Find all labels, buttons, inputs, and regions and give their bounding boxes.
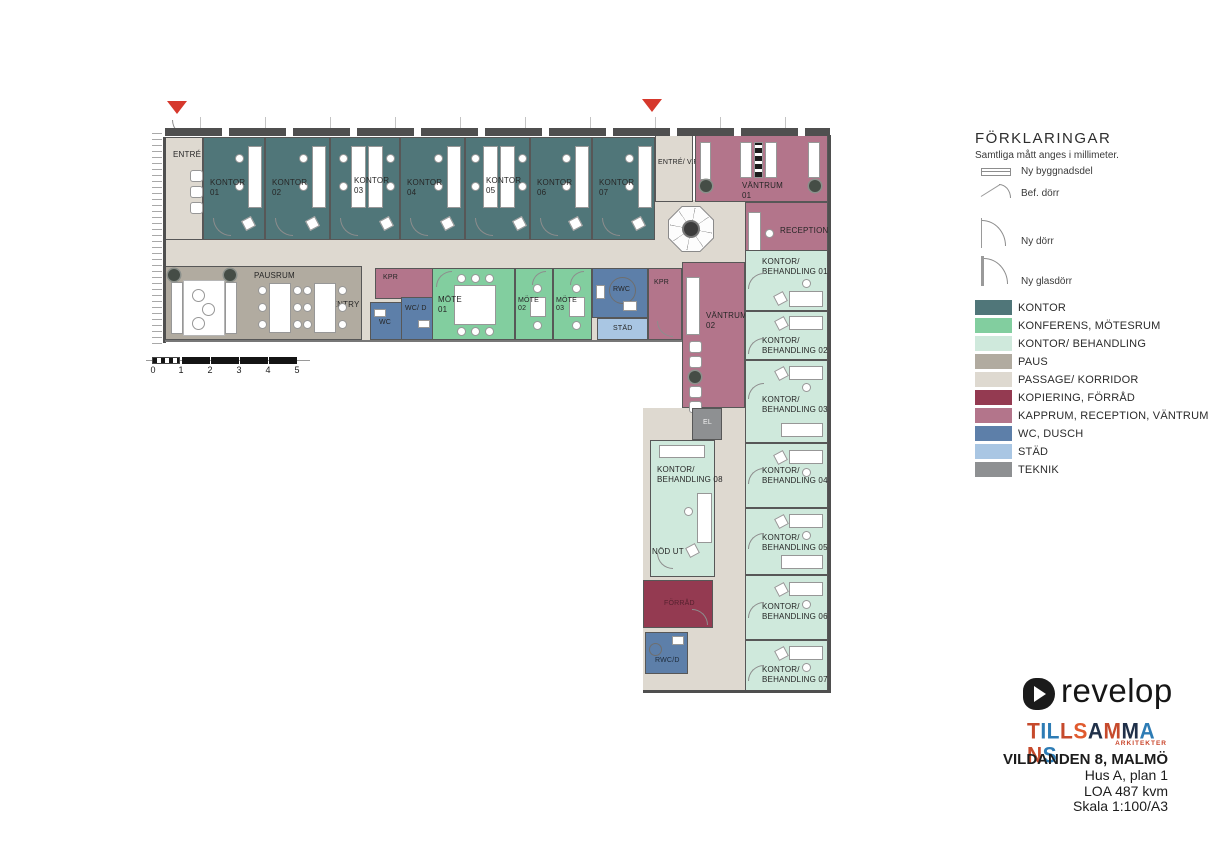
legend-symbol-label: Ny glasdörr xyxy=(1021,276,1072,287)
room-label: KPR xyxy=(654,279,669,287)
legend-color-row: TEKNIK xyxy=(975,462,1217,477)
chair xyxy=(303,286,312,295)
chair xyxy=(684,507,693,516)
legend-color-label: WC, DUSCH xyxy=(1018,428,1083,440)
desk xyxy=(789,646,823,660)
legend-color-label: KONTOR/ BEHANDLING xyxy=(1018,338,1146,350)
existing-wall-hatch xyxy=(152,132,162,344)
plant xyxy=(168,269,180,281)
chair xyxy=(293,286,302,295)
legend-color-label: PASSAGE/ KORRIDOR xyxy=(1018,374,1139,386)
bench xyxy=(808,142,820,178)
revelop-logo-icon xyxy=(1023,678,1055,710)
new-glass-door-icon xyxy=(984,258,1008,284)
chair xyxy=(339,154,348,163)
chair xyxy=(293,303,302,312)
legend-color-label: TEKNIK xyxy=(1018,464,1059,476)
room-rwc-d: RWC/D xyxy=(645,632,688,674)
legend-symbol-label: Ny dörr xyxy=(1021,236,1054,247)
legend-symbol-label: Bef. dörr xyxy=(1021,188,1059,199)
bench xyxy=(765,142,777,178)
legend-color-label: STÄD xyxy=(1018,446,1048,458)
play-icon xyxy=(1034,686,1046,702)
chair xyxy=(338,303,347,312)
room-label: VÄNTRUM02 xyxy=(706,311,747,330)
room-mote-01: MÖTE01 xyxy=(432,268,515,340)
chair xyxy=(338,320,347,329)
scale-bar-segment xyxy=(152,357,180,364)
chair xyxy=(802,383,811,392)
chair xyxy=(533,321,542,330)
room-behandling-01: KONTOR/BEHANDLING 01 xyxy=(745,250,828,311)
chair xyxy=(471,327,480,336)
door-arc xyxy=(748,665,764,681)
legend-color-row: KONTOR/ BEHANDLING xyxy=(975,336,1217,351)
room-stad: STÄD xyxy=(597,318,648,340)
chair xyxy=(258,303,267,312)
desk xyxy=(638,146,652,208)
desk xyxy=(789,582,823,596)
chair xyxy=(625,154,634,163)
shower-ring xyxy=(649,643,662,656)
chair xyxy=(190,186,203,198)
octagon-table xyxy=(668,206,714,252)
room-behandling-06: KONTOR/BEHANDLING 06 xyxy=(745,575,828,640)
chair xyxy=(774,646,789,661)
legend-color-label: KOPIERING, FÖRRÅD xyxy=(1018,392,1135,404)
scale-tick: 5 xyxy=(294,365,299,375)
door-arc xyxy=(692,609,708,625)
scale-bar-segment xyxy=(240,357,268,364)
legend-color-row: PASSAGE/ KORRIDOR xyxy=(975,372,1217,387)
legend-color-row: PAUS xyxy=(975,354,1217,369)
scale-bar-segment xyxy=(182,357,210,364)
legend-title: FÖRKLARINGAR xyxy=(975,130,1111,147)
room-label: KONTOR07 xyxy=(599,178,634,197)
studio-subtitle: ARKITEKTER xyxy=(1027,740,1167,747)
desk xyxy=(789,291,823,307)
legend-color-row: WC, DUSCH xyxy=(975,426,1217,441)
toilet xyxy=(596,285,605,299)
room-label: RWC/D xyxy=(655,657,680,665)
legend-color-row: KONFERENS, MÖTESRUM xyxy=(975,318,1217,333)
chair xyxy=(512,216,527,231)
scale-bar-segment xyxy=(211,357,239,364)
bed xyxy=(659,445,705,458)
scale-tick: 4 xyxy=(265,365,270,375)
chair xyxy=(562,154,571,163)
chair xyxy=(190,202,203,214)
chair xyxy=(303,303,312,312)
desk xyxy=(697,493,712,543)
outer-wall-top xyxy=(165,128,830,136)
chair xyxy=(386,154,395,163)
room-label: ENTRÉ xyxy=(173,150,201,160)
legend-swatch xyxy=(975,426,1012,441)
plant xyxy=(809,180,821,192)
room-label: WC xyxy=(379,319,391,327)
emergency-exit-label: NÖD UT xyxy=(652,547,684,557)
chair xyxy=(471,182,480,191)
chair xyxy=(689,386,702,398)
door-arc xyxy=(436,271,452,287)
chair xyxy=(305,216,320,231)
room-label: KONTOR02 xyxy=(272,178,307,197)
legend-subtitle: Samtliga mått anges i millimeter. xyxy=(975,150,1119,161)
outer-wall-bottom-left-wing xyxy=(165,340,682,342)
chair xyxy=(774,316,789,331)
room-label: KONTOR/BEHANDLING 06 xyxy=(762,602,828,621)
chair xyxy=(765,229,774,238)
outer-wall-bottom xyxy=(643,690,831,693)
room-label: KONTOR/BEHANDLING 01 xyxy=(762,257,828,276)
room-behandling-02: KONTOR/BEHANDLING 02 xyxy=(745,311,828,360)
desk xyxy=(789,316,823,330)
legend-swatch xyxy=(975,462,1012,477)
legend-color-label: KONTOR xyxy=(1018,302,1066,314)
chair xyxy=(471,274,480,283)
new-building-part-icon xyxy=(981,168,1011,176)
scale-bar: 0 1 2 3 4 5 xyxy=(150,352,306,374)
coffee-table xyxy=(192,317,205,330)
room-label: MÖTE02 xyxy=(518,297,539,314)
desk xyxy=(312,146,326,208)
door-arc xyxy=(410,218,428,236)
sofa xyxy=(171,282,183,334)
brand-logo: revelop xyxy=(1023,676,1168,714)
chair xyxy=(471,154,480,163)
room-label: RWC xyxy=(613,286,630,294)
room-label: KONTOR/BEHANDLING 05 xyxy=(762,533,828,552)
chair xyxy=(533,284,542,293)
octagon-table-hub xyxy=(684,222,698,236)
room-label: PAUSRUM xyxy=(254,271,295,281)
reception-desk xyxy=(748,212,761,252)
plant xyxy=(224,269,236,281)
room-mote-02: MÖTE02 xyxy=(515,268,553,340)
door-arc xyxy=(475,218,493,236)
legend-symbol-label: Ny byggnadsdel xyxy=(1021,166,1093,177)
room-vantrum-01: VÄNTRUM01 xyxy=(695,135,828,202)
room-kpr-b: KPR xyxy=(648,268,682,340)
legend-color-row: KONTOR xyxy=(975,300,1217,315)
room-label: STÄD xyxy=(613,325,632,333)
door-arc xyxy=(748,338,764,354)
chair xyxy=(485,274,494,283)
sink xyxy=(672,636,684,645)
room-label: KONTOR04 xyxy=(407,178,442,197)
chair xyxy=(631,216,646,231)
corridor-main xyxy=(165,240,682,268)
new-door-icon xyxy=(982,220,1006,246)
brand-name: revelop xyxy=(1061,672,1173,710)
plant xyxy=(700,180,712,192)
legend-color-row: KOPIERING, FÖRRÅD xyxy=(975,390,1217,405)
door-arc xyxy=(748,383,764,399)
room-label: KONTOR/BEHANDLING 08 xyxy=(657,465,723,484)
bench xyxy=(700,142,711,180)
chair xyxy=(689,341,702,353)
legend-color-label: PAUS xyxy=(1018,356,1048,368)
desk xyxy=(789,450,823,464)
project-line: LOA 487 kvm xyxy=(1003,784,1168,800)
chair xyxy=(689,356,702,368)
sofa xyxy=(225,282,237,334)
chair xyxy=(338,286,347,295)
room-label: ENTRÉ/ V.F xyxy=(658,159,698,167)
legend-color-label: KONFERENS, MÖTESRUM xyxy=(1018,320,1161,332)
room-label: VÄNTRUM01 xyxy=(742,181,783,200)
chair xyxy=(572,321,581,330)
room-kontor-04: KONTOR04 xyxy=(400,137,465,240)
room-mote-03: MÖTE03 xyxy=(553,268,592,340)
room-label: KONTOR/BEHANDLING 07 xyxy=(762,665,828,684)
sink xyxy=(623,301,637,311)
entrance-marker xyxy=(642,99,662,112)
scale-tick: 0 xyxy=(150,365,155,375)
room-kontor-02: KONTOR02 xyxy=(265,137,330,240)
room-forrad: FÖRRÅD xyxy=(643,580,713,628)
door-arc xyxy=(748,468,764,484)
desk xyxy=(789,366,823,380)
sink xyxy=(418,320,430,328)
door-arc xyxy=(657,321,673,337)
chair xyxy=(190,170,203,182)
bench xyxy=(740,142,752,178)
existing-door-icon xyxy=(999,184,1011,198)
project-line: Hus A, plan 1 xyxy=(1003,768,1168,784)
chair xyxy=(572,284,581,293)
chair xyxy=(440,216,455,231)
entrance-marker xyxy=(167,101,187,114)
room-kontor-05: KONTOR05 xyxy=(465,137,530,240)
room-rwc: RWC xyxy=(592,268,648,318)
desk xyxy=(248,146,262,208)
legend-color-row: STÄD xyxy=(975,444,1217,459)
coffee-table xyxy=(202,303,215,316)
chair xyxy=(379,216,394,231)
room-pausrum: PAUSRUM PENTRY xyxy=(165,266,362,340)
room-kontor-01: KONTOR01 xyxy=(203,137,265,240)
room-label: KONTOR/BEHANDLING 04 xyxy=(762,466,828,485)
legend-swatch xyxy=(975,444,1012,459)
plant xyxy=(689,371,701,383)
chair xyxy=(241,216,256,231)
legend-swatch xyxy=(975,408,1012,423)
chair xyxy=(457,274,466,283)
chair xyxy=(457,327,466,336)
room-kpr-a: KPR xyxy=(375,268,433,299)
door-arc xyxy=(275,218,293,236)
room-reception: RECEPTION xyxy=(745,202,828,255)
room-wc-d: WC/ D xyxy=(401,297,434,340)
legend-swatch xyxy=(975,390,1012,405)
project-info: VILDANDEN 8, MALMÖ Hus A, plan 1 LOA 487… xyxy=(1003,751,1168,815)
door-arc xyxy=(748,602,764,618)
room-label: KONTOR/BEHANDLING 02 xyxy=(762,336,828,355)
outer-wall-left xyxy=(163,137,166,343)
project-line: Skala 1:100/A3 xyxy=(1003,799,1168,815)
door-arc xyxy=(340,218,358,236)
room-label: KONTOR03 xyxy=(354,176,389,195)
chair xyxy=(774,514,789,529)
room-label: KONTOR05 xyxy=(486,176,521,195)
table xyxy=(314,283,336,333)
sink xyxy=(374,309,386,317)
room-label: MÖTE03 xyxy=(556,297,577,314)
room-entre-vf: ENTRÉ/ V.F xyxy=(655,128,693,202)
room-label: MÖTE01 xyxy=(438,295,462,314)
chair xyxy=(773,291,788,306)
bench xyxy=(686,277,700,335)
chair xyxy=(339,182,348,191)
room-label: KPR xyxy=(383,274,398,282)
room-behandling-03: KONTOR/BEHANDLING 03 xyxy=(745,360,828,443)
coffee-table xyxy=(192,289,205,302)
legend-color-label: KAPPRUM, RECEPTION, VÄNTRUM xyxy=(1018,410,1209,422)
chair xyxy=(258,320,267,329)
door-arc xyxy=(748,273,764,289)
scale-tick: 3 xyxy=(236,365,241,375)
existing-door-icon xyxy=(981,184,1000,197)
door-arc xyxy=(213,218,231,236)
bed xyxy=(781,555,823,569)
room-behandling-04: KONTOR/BEHANDLING 04 xyxy=(745,443,828,508)
scale-tick: 1 xyxy=(178,365,183,375)
room-el: EL xyxy=(692,408,722,440)
room-label: RECEPTION xyxy=(780,226,828,236)
project-title: VILDANDEN 8, MALMÖ xyxy=(1003,751,1168,768)
chair xyxy=(235,154,244,163)
floorplan-sheet: { "palette": { "kontor": "#507679", "kon… xyxy=(0,0,1220,860)
room-kontor-07: KONTOR07 xyxy=(592,137,655,240)
chair xyxy=(518,154,527,163)
legend-swatch xyxy=(975,318,1012,333)
chair xyxy=(773,450,788,465)
chair xyxy=(293,320,302,329)
door-arc xyxy=(602,218,620,236)
room-label: EL xyxy=(703,419,712,427)
outer-wall-right xyxy=(828,135,831,692)
desk xyxy=(575,146,589,208)
chair xyxy=(685,543,700,558)
table xyxy=(269,283,291,333)
room-entre: ENTRÉ xyxy=(165,137,203,240)
chair xyxy=(258,286,267,295)
chair xyxy=(485,327,494,336)
legend-swatch xyxy=(975,372,1012,387)
room-label: KONTOR01 xyxy=(210,178,245,197)
legend-swatch xyxy=(975,336,1012,351)
room-behandling-07: KONTOR/BEHANDLING 07 xyxy=(745,640,828,692)
room-label: KONTOR06 xyxy=(537,178,572,197)
room-wc: WC xyxy=(370,302,402,340)
room-label: FÖRRÅD xyxy=(664,600,695,608)
door-arc xyxy=(570,271,584,285)
door-arc xyxy=(532,271,546,285)
chair xyxy=(299,154,308,163)
coat-rack xyxy=(754,142,763,178)
room-label: KONTOR/BEHANDLING 03 xyxy=(762,395,828,414)
bed xyxy=(781,423,823,437)
room-behandling-05: KONTOR/BEHANDLING 05 xyxy=(745,508,828,575)
desk xyxy=(789,514,823,528)
desk xyxy=(447,146,461,208)
chair xyxy=(303,320,312,329)
room-kontor-06: KONTOR06 xyxy=(530,137,592,240)
room-label: WC/ D xyxy=(405,305,427,313)
door-arc xyxy=(748,533,764,549)
chair xyxy=(774,582,789,597)
room-vantrum-02: VÄNTRUM02 xyxy=(682,262,745,408)
door-arc xyxy=(540,218,558,236)
room-kontor-03: KONTOR03 xyxy=(330,137,400,240)
chair xyxy=(802,279,811,288)
legend-swatch xyxy=(975,300,1012,315)
chair xyxy=(434,154,443,163)
scale-tick: 2 xyxy=(207,365,212,375)
legend-swatch xyxy=(975,354,1012,369)
scale-bar-segment xyxy=(269,357,297,364)
grid-ticks xyxy=(200,117,832,128)
legend-color-row: KAPPRUM, RECEPTION, VÄNTRUM xyxy=(975,408,1217,423)
chair xyxy=(568,216,583,231)
chair xyxy=(774,366,789,381)
